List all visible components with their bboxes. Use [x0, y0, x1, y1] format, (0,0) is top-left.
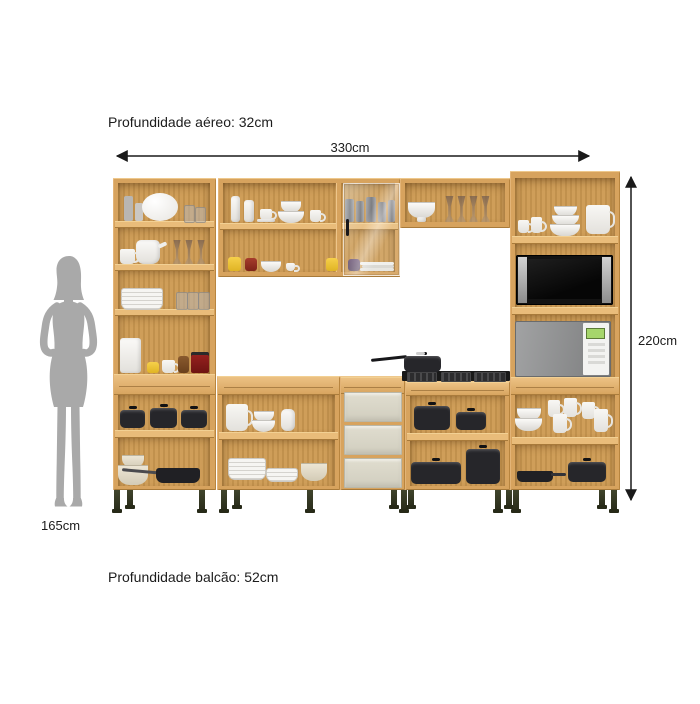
drawer: [344, 458, 402, 488]
bowl-item: [301, 463, 327, 481]
shelf: [115, 430, 214, 438]
pot-item: [456, 412, 486, 430]
drawer: [344, 425, 402, 455]
cabinet-leg: [234, 490, 240, 506]
glass-item: [184, 205, 195, 223]
pot-item: [568, 462, 606, 482]
product-dimension-diagram: Profundidade aéreo: 32cm 330cm 220cm 165…: [0, 0, 700, 704]
shelf: [115, 309, 214, 316]
glass-door-handle: [346, 219, 349, 236]
bowl-foot: [417, 217, 426, 222]
shelf: [512, 437, 618, 445]
cabinet-leg: [506, 490, 512, 506]
drawer: [344, 392, 402, 422]
burner-grate: [441, 372, 471, 382]
silhouette-right-foot: [70, 498, 83, 507]
cup-item: [286, 263, 295, 271]
black-microwave: [516, 255, 613, 305]
mug-item: [594, 409, 608, 432]
pot-item: [150, 408, 177, 428]
canister-item: [120, 338, 141, 373]
pitcher-item: [586, 205, 610, 234]
saucepan-handle: [371, 355, 407, 362]
vase-item: [281, 409, 295, 431]
jar-item: [245, 258, 257, 271]
jar-item: [228, 257, 241, 271]
stockpot-item: [466, 449, 500, 484]
base-rail: [218, 376, 339, 395]
cabinet-leg: [199, 490, 205, 510]
microwave-trim: [518, 257, 527, 303]
teapot-item: [136, 240, 160, 264]
silhouette-left-foot: [55, 498, 68, 507]
plate-stack-item: [266, 468, 298, 482]
jar-item: [147, 362, 159, 373]
cup-item: [518, 220, 529, 233]
vase-item: [124, 196, 133, 221]
jar-item: [326, 258, 338, 271]
glass-door: [343, 183, 400, 276]
saucepan-lid-knob: [416, 352, 425, 355]
skillet-handle: [551, 473, 566, 476]
cabinet-leg: [611, 490, 617, 510]
cooktop-rail: [406, 382, 509, 396]
cabinet-leg: [307, 490, 313, 510]
saucepan: [404, 356, 441, 372]
pot-item: [120, 410, 145, 428]
cabinet-leg: [408, 490, 414, 506]
microwave-trim: [602, 257, 611, 303]
cabinet-leg: [495, 490, 501, 510]
cabinet-leg: [114, 490, 120, 510]
shelf: [219, 432, 338, 440]
cup-item: [531, 217, 542, 233]
pot-item: [411, 462, 461, 484]
cabinet-leg: [599, 490, 605, 506]
saucer-item: [257, 219, 275, 222]
cup-item: [162, 360, 175, 373]
frying-pan-item: [156, 468, 200, 483]
microwave-display: [586, 328, 605, 339]
plate-stack-item: [228, 458, 266, 480]
pot-item: [181, 410, 207, 428]
cabinet-leg: [391, 490, 397, 506]
cabinet-leg: [221, 490, 227, 510]
cabinet-leg: [127, 490, 133, 506]
mug-item: [553, 414, 567, 433]
pot-item: [414, 406, 450, 430]
bottle-item: [244, 200, 254, 222]
pantry-rail: [114, 374, 215, 395]
cup-item: [120, 249, 135, 264]
microwave-door: [528, 259, 601, 299]
silhouette-left-leg: [56, 407, 66, 499]
silhouette-right-leg: [71, 407, 81, 499]
microwave-keypad: [588, 343, 605, 367]
tower-rail: [511, 377, 619, 395]
shelf: [115, 264, 214, 271]
silver-microwave: [515, 321, 611, 377]
shelf: [512, 236, 618, 244]
woman-silhouette: [28, 252, 108, 514]
bottle-item: [231, 196, 240, 222]
glass-item: [195, 207, 206, 223]
shelf: [512, 307, 618, 315]
egg-ornament-item: [142, 193, 178, 221]
silhouette-skirt: [50, 351, 88, 407]
coffee-machine-item: [191, 352, 209, 373]
skillet-item: [517, 471, 553, 482]
pitcher-item: [226, 404, 248, 431]
cup-item: [310, 210, 321, 222]
shelf: [407, 433, 508, 441]
cabinet-leg: [513, 490, 519, 510]
jar-item: [178, 356, 189, 373]
plate-stack-item: [121, 288, 163, 310]
glass-item: [198, 292, 210, 310]
burner-grate: [474, 372, 506, 382]
burner-grate: [407, 372, 437, 382]
